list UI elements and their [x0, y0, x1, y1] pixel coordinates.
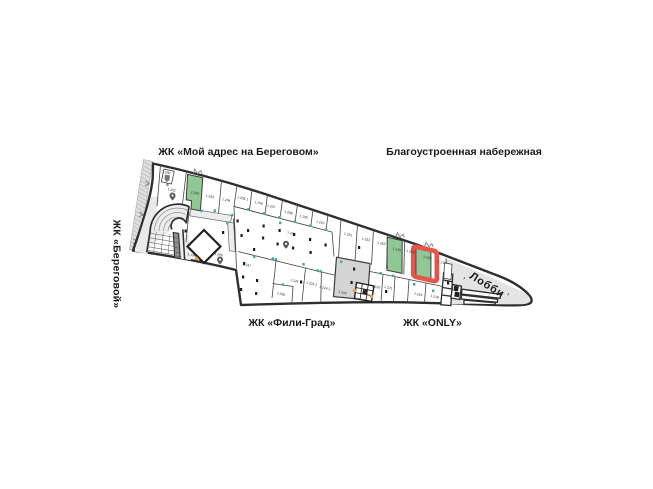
svg-text:ЖК «Береговой»: ЖК «Береговой»	[111, 219, 123, 309]
svg-text:ЖК «Фили-Град»: ЖК «Фили-Град»	[247, 317, 335, 329]
svg-text:ЖК «ONLY»: ЖК «ONLY»	[402, 317, 462, 329]
svg-text:ПС: ПС	[445, 279, 450, 284]
svg-text:Благоустроенная набережная: Благоустроенная набережная	[386, 146, 542, 158]
svg-text:ЖК «Мой адрес на Береговом»: ЖК «Мой адрес на Береговом»	[157, 146, 318, 158]
